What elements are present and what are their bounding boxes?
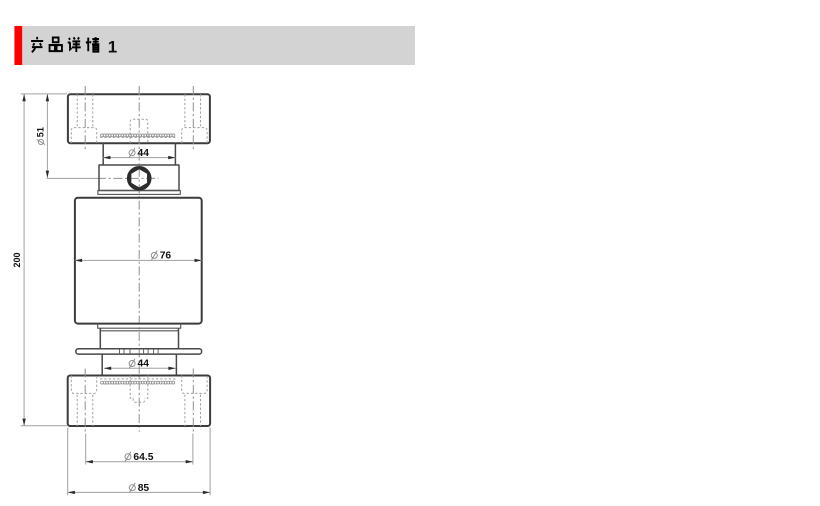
svg-text:85: 85	[138, 483, 150, 494]
svg-text:76: 76	[160, 251, 172, 262]
svg-text:44: 44	[138, 359, 150, 370]
svg-text:200: 200	[12, 252, 22, 267]
svg-text:64.5: 64.5	[133, 452, 153, 463]
svg-text:51: 51	[36, 127, 46, 137]
svg-text:1: 1	[108, 38, 117, 57]
svg-text:44: 44	[138, 148, 150, 159]
